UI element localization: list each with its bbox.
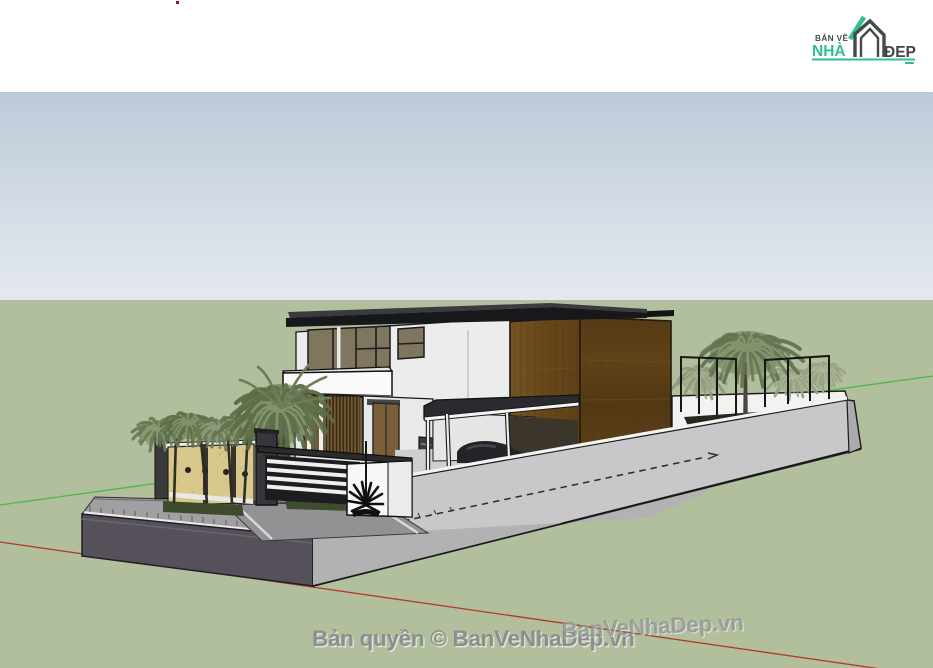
svg-text:ĐẸP: ĐẸP (884, 44, 916, 61)
svg-text:BẢN VẼ: BẢN VẼ (815, 32, 848, 43)
svg-text:NHÀ: NHÀ (812, 43, 846, 60)
